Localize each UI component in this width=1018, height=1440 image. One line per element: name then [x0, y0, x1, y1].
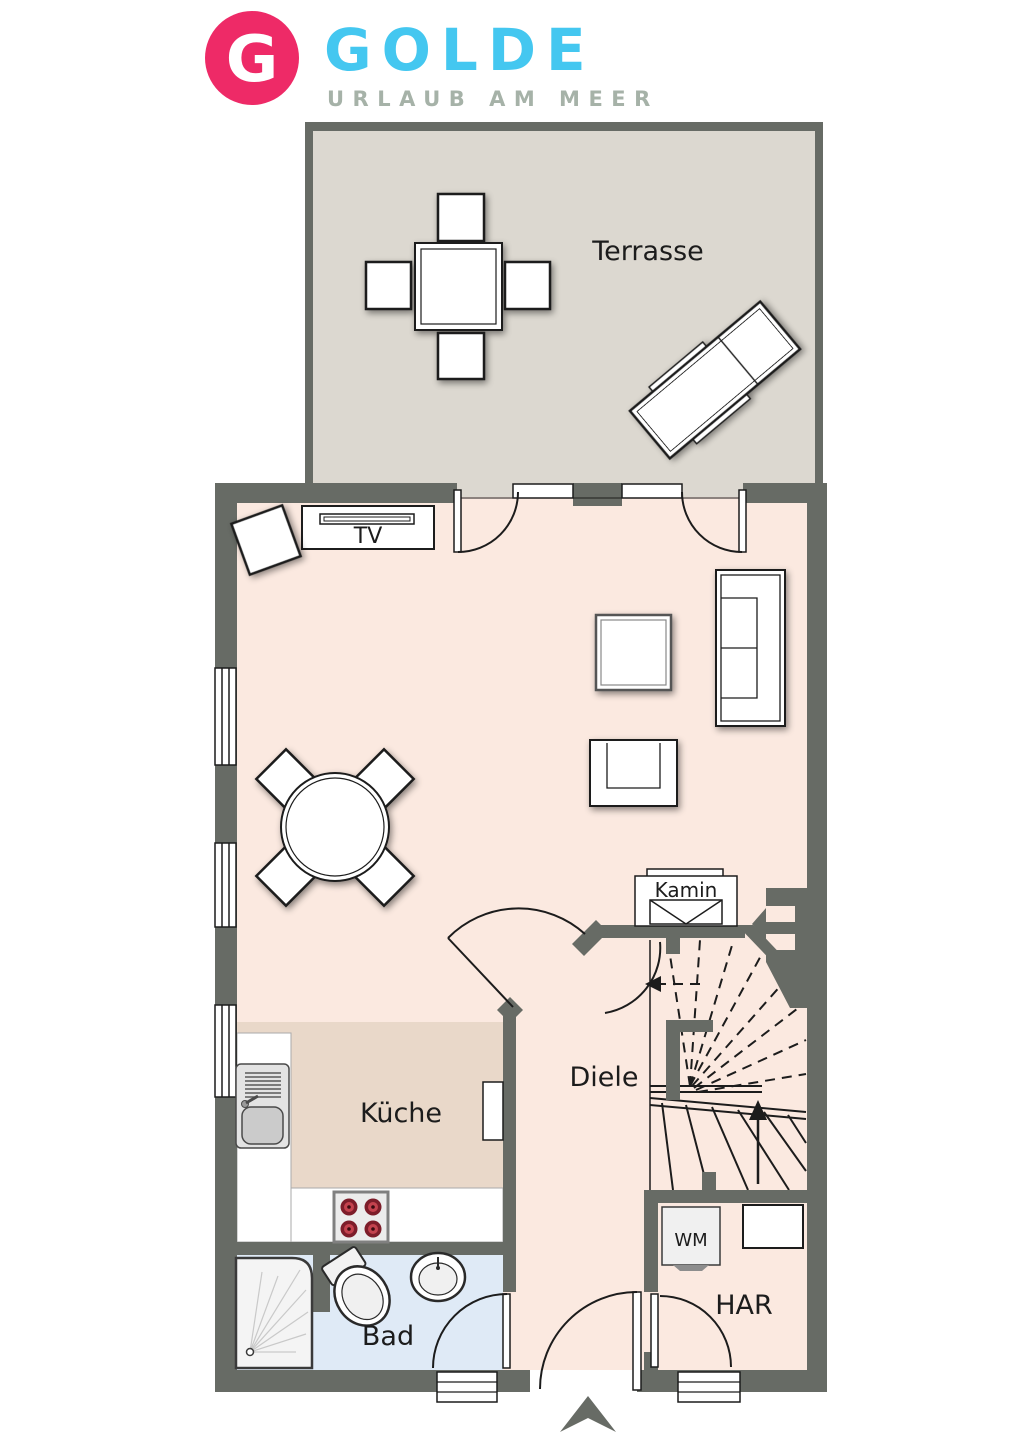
floorplan-page: Terrasse TV Kamin Küche Diele Bad WM HAR… — [0, 0, 1018, 1440]
washing-machine-label: WM — [674, 1230, 707, 1251]
stove — [334, 1192, 388, 1242]
terrace-chair — [438, 194, 484, 241]
kitchen-sink — [236, 1064, 289, 1148]
terrace-chair — [438, 333, 484, 379]
radiator-bath — [437, 1372, 497, 1402]
bath-label: Bad — [362, 1321, 414, 1352]
hall-label: Diele — [569, 1062, 638, 1093]
logo: G GOLDE URLAUB AM MEER — [205, 11, 659, 111]
terrace-chair — [505, 262, 550, 309]
kitchen-label: Küche — [360, 1098, 442, 1129]
tv-label: TV — [353, 524, 383, 549]
dining-table — [281, 773, 389, 881]
sofa — [716, 570, 785, 726]
entrance-opening — [530, 1370, 637, 1392]
utility-shelf — [743, 1205, 803, 1248]
terrace-table — [415, 243, 502, 330]
terrace-label: Terrasse — [591, 236, 704, 267]
fireplace-label: Kamin — [655, 878, 718, 902]
window-kitchen — [215, 1005, 236, 1097]
logo-tagline: URLAUB AM MEER — [327, 87, 659, 111]
armchair — [590, 740, 677, 806]
entry-arrow-icon — [560, 1396, 616, 1432]
window-living-1 — [215, 668, 236, 765]
logo-brand: GOLDE — [324, 16, 596, 84]
floorplan-drawing: Terrasse TV Kamin Küche Diele Bad WM HAR… — [0, 0, 1018, 1440]
windows — [215, 668, 236, 1097]
shower — [236, 1258, 312, 1368]
terrace-chair — [366, 262, 411, 309]
washbasin — [411, 1253, 465, 1301]
radiator-utility — [678, 1372, 740, 1402]
kitchen-niche — [483, 1082, 503, 1140]
coffee-table — [596, 615, 671, 690]
utility-label: HAR — [715, 1290, 773, 1321]
logo-monogram: G — [226, 23, 279, 97]
window-living-2 — [215, 843, 236, 927]
